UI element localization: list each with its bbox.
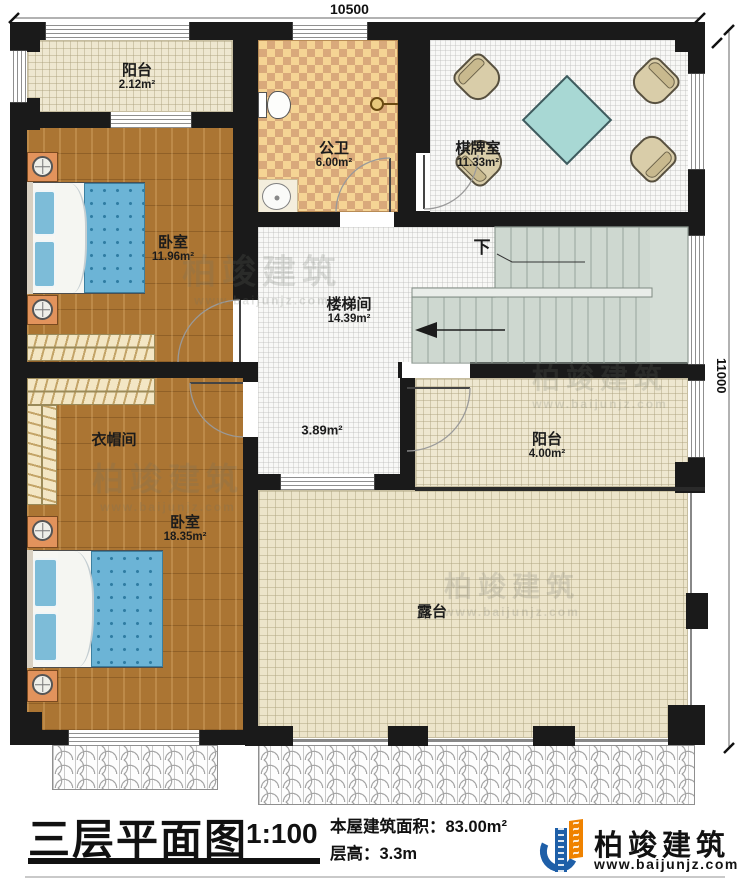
roof-shingles [258, 745, 695, 805]
window [292, 22, 368, 40]
bed-bottom-sheet [58, 551, 94, 667]
balcony-right-rail [415, 487, 705, 491]
room-label-stairwell: 楼梯间 14.39m² [326, 296, 371, 326]
stairs-down-label: 下 [474, 238, 491, 258]
wall-lamp-stem [383, 103, 398, 105]
wall-bedroom-bathroom [233, 22, 258, 300]
room-label-bedroom-top: 卧室 11.96m² [152, 234, 194, 264]
table-lamp-icon [32, 674, 53, 695]
brand-logo-icon [540, 820, 588, 878]
wall-pilaster [10, 712, 42, 745]
nightstand [27, 152, 58, 182]
terrace-pillar [533, 726, 575, 746]
bed-top-mattress [84, 183, 145, 293]
terrace-pillar [388, 726, 428, 746]
sheet-scale: 1:100 [246, 818, 318, 850]
window [10, 50, 27, 103]
roof-shingles [52, 745, 218, 790]
wall-pilaster [675, 22, 705, 52]
window [688, 235, 705, 365]
room-area: 2.12m² [119, 79, 155, 92]
window [110, 112, 192, 128]
wall-bedrooms-divider [10, 362, 258, 378]
window [688, 73, 705, 170]
wardrobe-cloakroom-top [27, 378, 155, 405]
table-lamp-icon [32, 156, 53, 177]
bed-bottom-pillow [33, 612, 58, 662]
bed-bottom-mattress [91, 551, 163, 667]
room-name: 阳台 [119, 62, 155, 79]
room-label-terrace: 露台 [417, 603, 447, 620]
terrace-corner-pillar [668, 705, 705, 745]
door-opening-cloakroom [243, 382, 258, 437]
nightstand [27, 295, 58, 325]
toilet-icon [258, 92, 267, 118]
room-name: 棋牌室 [455, 140, 500, 157]
bed-top-pillow [33, 190, 56, 236]
bed-top-sheet [55, 183, 87, 293]
room-area: 18.35m² [164, 531, 207, 544]
brand-url: www.baijunjz.com [594, 856, 739, 872]
terrace-floor [258, 490, 688, 738]
room-label-balcony-top: 阳台 2.12m² [119, 62, 155, 92]
title-underline [28, 858, 320, 864]
wall-lamp-icon [370, 97, 384, 111]
wall-left [10, 22, 27, 745]
room-area: 14.39m² [326, 313, 371, 326]
room-label-bedroom-bottom: 卧室 18.35m² [164, 514, 207, 544]
window [280, 474, 375, 490]
sheet-bottom-rule [25, 876, 725, 878]
dimension-top: 10500 [330, 1, 369, 17]
sink-icon [262, 183, 291, 210]
wall-balcony-right-left [400, 378, 415, 474]
window [68, 730, 200, 745]
room-name: 公卫 [316, 140, 352, 157]
room-label-chess-room: 棋牌室 11.33m² [455, 140, 500, 170]
room-area: 11.33m² [455, 157, 500, 170]
sheet-info: 本屋建筑面积：83.00m² 层高：3.3m [330, 814, 507, 868]
table-lamp-icon [32, 299, 53, 320]
dimension-right: 11000 [714, 358, 729, 393]
toilet-icon [267, 91, 291, 119]
room-label-cloakroom: 衣帽间 [91, 431, 136, 448]
room-area: 11.96m² [152, 251, 194, 264]
wall-pilaster [10, 22, 40, 52]
floor-plan-sheet: 10500 11000 阳台 2.12m² 卧室 11.96m² 公卫 6.00… [0, 0, 750, 887]
room-label-balcony-right: 阳台 4.00m² [529, 431, 565, 461]
logo-building-orange-icon [569, 819, 583, 859]
floor-height-line: 层高：3.3m [330, 841, 507, 868]
room-name: 楼梯间 [326, 296, 371, 313]
room-name: 卧室 [152, 234, 194, 251]
wardrobe-bedroom-top [27, 334, 155, 361]
bed-top-pillow [33, 240, 56, 288]
building-area-line: 本屋建筑面积：83.00m² [330, 814, 507, 841]
door-opening-chess [416, 153, 430, 211]
window [688, 380, 705, 458]
window [45, 22, 190, 40]
wardrobe-cloakroom-left [27, 405, 57, 505]
nightstand [27, 670, 58, 702]
bed-bottom-pillow [33, 558, 58, 608]
wall-mid-horizontal [258, 212, 705, 227]
terrace-pillar [245, 726, 293, 746]
hall-area-label: 3.89m² [301, 424, 342, 439]
table-lamp-icon [32, 520, 53, 541]
terrace-bottom-rail [258, 739, 690, 742]
door-opening-balcony-right [402, 362, 470, 378]
room-label-bathroom: 公卫 6.00m² [316, 140, 352, 170]
logo-building-blue-icon [555, 828, 567, 872]
stairs-landing [650, 227, 688, 363]
room-name: 卧室 [164, 514, 207, 531]
terrace-pillar [686, 593, 708, 629]
door-opening-bathroom [340, 212, 394, 227]
stairs-lower-flight [412, 297, 688, 363]
room-area: 6.00m² [316, 157, 352, 170]
nightstand [27, 516, 58, 548]
room-name: 阳台 [529, 431, 565, 448]
room-area: 4.00m² [529, 448, 565, 461]
